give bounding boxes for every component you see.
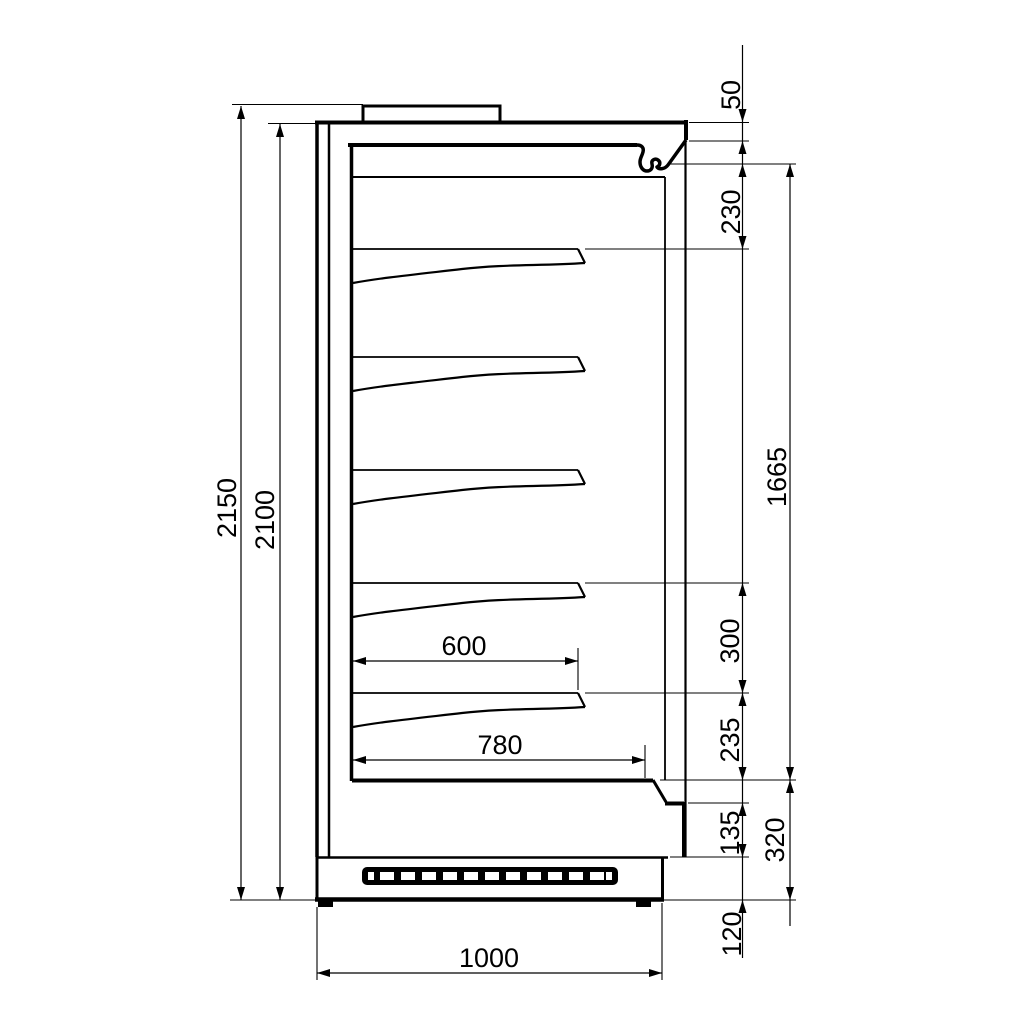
canopy-curl-profile <box>637 140 686 171</box>
case-outline <box>315 106 686 900</box>
bottom-shelf-to-deck-label: 235 <box>715 717 745 762</box>
shelf <box>353 583 585 617</box>
deck-depth-label: 780 <box>477 730 522 760</box>
shelf-pitch-label: 300 <box>715 618 745 663</box>
dimension-arrows <box>237 106 794 977</box>
drawing-canvas: 2150 2100 50 230 1665 300 235 135 320 12… <box>0 0 1024 1024</box>
base-section-height-label: 320 <box>760 817 790 862</box>
height-to-canopy-label: 2100 <box>250 490 280 550</box>
shelf <box>353 693 585 727</box>
plinth-height-label: 120 <box>717 911 747 956</box>
overall-depth-label: 1000 <box>459 943 519 973</box>
ventilation-grille <box>362 867 618 885</box>
shelf <box>353 470 585 504</box>
dimension-labels: 2150 2100 50 230 1665 300 235 135 320 12… <box>212 80 792 973</box>
display-opening-height-label: 1665 <box>762 447 792 507</box>
canopy-to-first-shelf-label: 230 <box>716 189 746 234</box>
overall-height-label: 2150 <box>212 478 242 538</box>
dimension-lines <box>241 45 790 973</box>
canopy-fascia-label: 50 <box>716 80 746 110</box>
display-case-technical-drawing: 2150 2100 50 230 1665 300 235 135 320 12… <box>0 0 1024 1024</box>
shelf-depth-label: 600 <box>441 631 486 661</box>
shelf <box>353 249 585 283</box>
front-recess-height-label: 135 <box>715 810 745 855</box>
foot-left <box>318 901 333 907</box>
top-fan-housing <box>363 106 500 123</box>
deck-nose <box>653 780 666 802</box>
extension-lines <box>230 105 796 981</box>
foot-right <box>636 901 651 907</box>
shelf <box>353 357 585 391</box>
